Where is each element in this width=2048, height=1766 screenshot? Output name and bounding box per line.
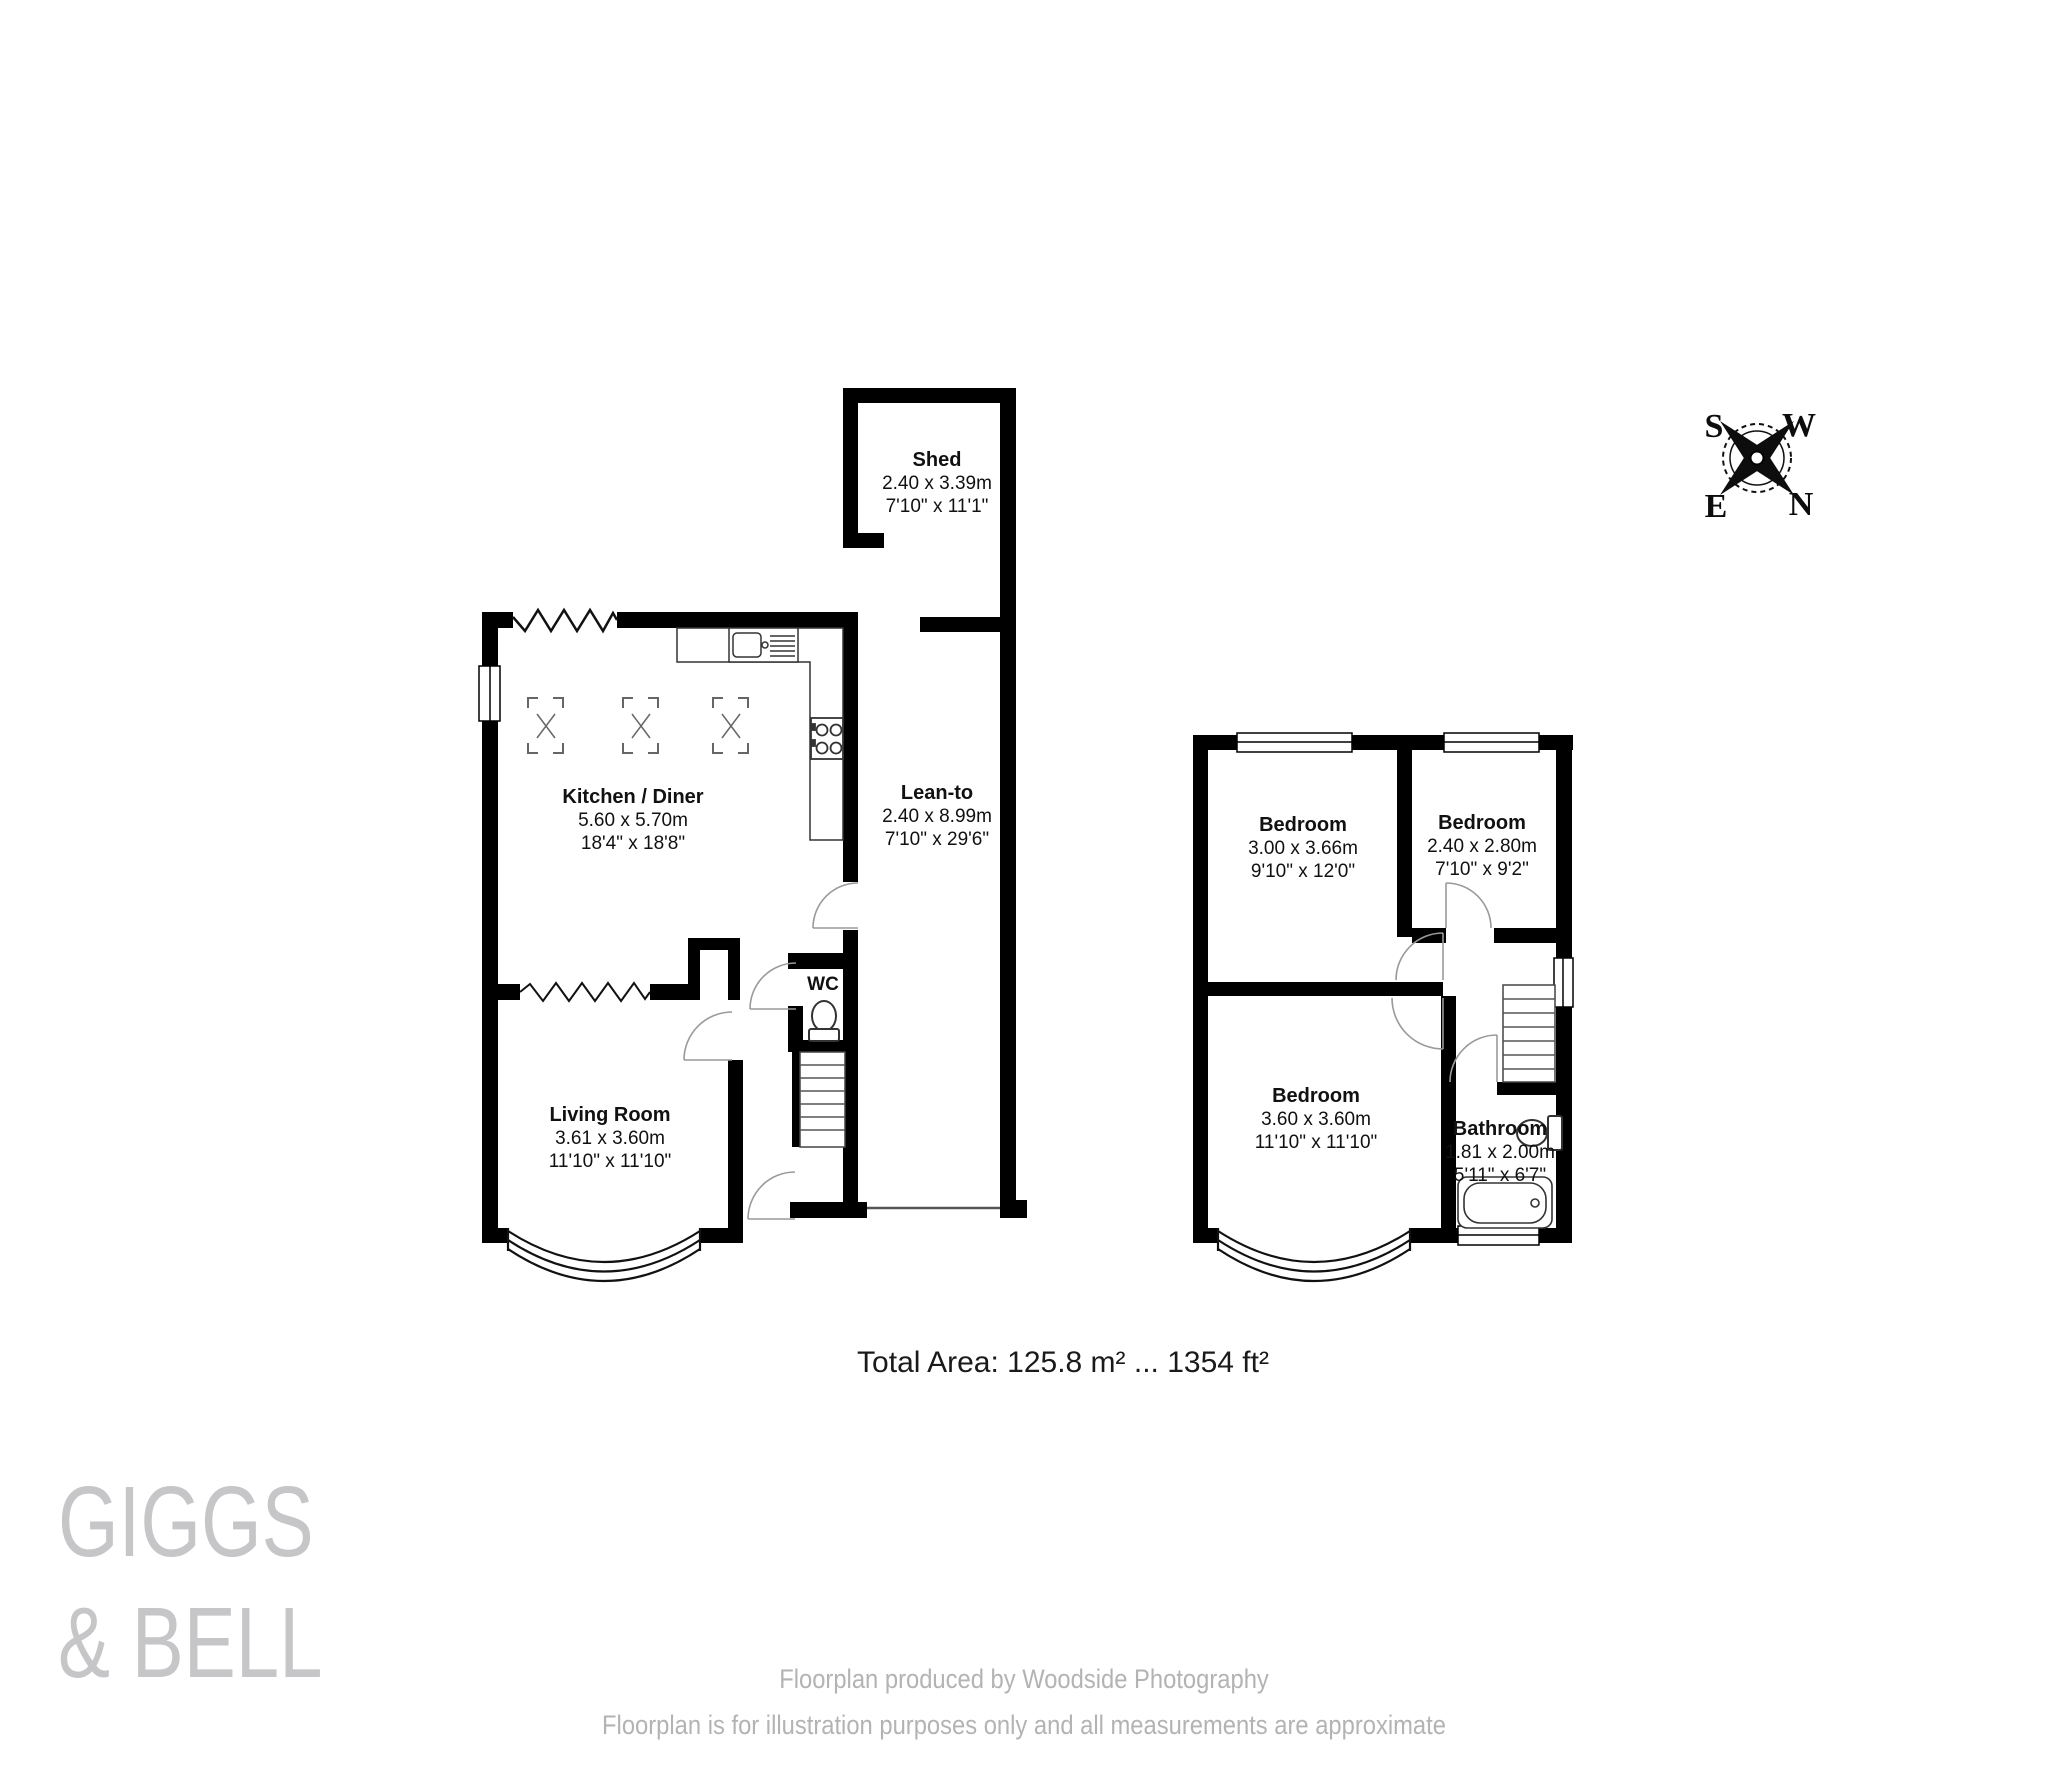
room-size-metric: 2.40 x 2.80m xyxy=(1427,835,1537,858)
compass-south: S xyxy=(1705,408,1724,445)
room-size-metric: 3.00 x 3.66m xyxy=(1248,837,1358,860)
room-size-imperial: 5'11" x 6'7" xyxy=(1445,1164,1555,1187)
stairs-first xyxy=(1503,985,1555,1082)
door-arc xyxy=(750,963,796,1009)
door-arc xyxy=(1392,998,1443,1049)
skylight-icon xyxy=(713,698,748,753)
agency-logo-line-1: GIGGS xyxy=(58,1472,314,1572)
room-label-wc: WC xyxy=(807,974,839,996)
door-arc xyxy=(748,1172,795,1219)
door-arc xyxy=(813,883,858,928)
room-size-metric: 3.61 x 3.60m xyxy=(549,1127,672,1150)
room-size-imperial: 7'10" x 9'2" xyxy=(1427,858,1537,881)
skylight-icon xyxy=(528,698,563,753)
room-size-metric: 5.60 x 5.70m xyxy=(562,809,703,832)
room-size-imperial: 18'4" x 18'8" xyxy=(562,832,703,855)
skylight-icons xyxy=(528,698,748,753)
room-name: Bedroom xyxy=(1248,814,1358,837)
room-name: Bathroom xyxy=(1445,1118,1555,1141)
landing-window xyxy=(1554,958,1573,1007)
room-name: Shed xyxy=(882,449,992,472)
room-label-bathroom: Bathroom 1.81 x 2.00m 5'11" x 6'7" xyxy=(1445,1118,1555,1187)
room-label-lean-to: Lean-to 2.40 x 8.99m 7'10" x 29'6" xyxy=(882,782,992,851)
floorplan-page: S W E N Shed 2.40 x 3.39m 7'10" x 11'1" … xyxy=(0,0,2048,1766)
total-area-text: Total Area: 125.8 m² ... 1354 ft² xyxy=(857,1346,1269,1380)
stairs-ground xyxy=(800,1052,845,1147)
kitchen-window xyxy=(479,666,500,721)
toilet-icon xyxy=(809,1001,839,1041)
door-arc xyxy=(1450,1035,1497,1082)
room-size-imperial: 7'10" x 11'1" xyxy=(882,495,992,518)
room-name: Living Room xyxy=(549,1104,672,1127)
room-size-imperial: 9'10" x 12'0" xyxy=(1248,860,1358,883)
room-label-bedroom-2: Bedroom 2.40 x 2.80m 7'10" x 9'2" xyxy=(1427,812,1537,881)
room-size-metric: 3.60 x 3.60m xyxy=(1255,1108,1378,1131)
room-name: Kitchen / Diner xyxy=(562,786,703,809)
room-label-bedroom-3: Bedroom 3.60 x 3.60m 11'10" x 11'10" xyxy=(1255,1085,1378,1154)
bedroom-window xyxy=(1444,733,1539,752)
bay-window-ground xyxy=(508,1228,700,1281)
zigzag-opening-kitchen xyxy=(513,610,617,631)
room-size-metric: 2.40 x 8.99m xyxy=(882,805,992,828)
footer-disclaimer: Floorplan is for illustration purposes o… xyxy=(602,1712,1446,1739)
skylight-icon xyxy=(623,698,658,753)
footer-credit: Floorplan produced by Woodside Photograp… xyxy=(779,1666,1269,1693)
room-size-metric: 1.81 x 2.00m xyxy=(1445,1141,1555,1164)
agency-logo-line-2: & BELL xyxy=(58,1593,323,1693)
compass-rose: S W E N xyxy=(1705,407,1816,525)
bay-window-first xyxy=(1218,1228,1410,1281)
compass-east: E xyxy=(1705,488,1728,525)
room-size-imperial: 11'10" x 11'10" xyxy=(549,1150,672,1173)
compass-west: W xyxy=(1782,407,1816,444)
bathroom-window xyxy=(1458,1226,1539,1245)
room-name: Bedroom xyxy=(1427,812,1537,835)
room-name: Bedroom xyxy=(1255,1085,1378,1108)
room-size-metric: 2.40 x 3.39m xyxy=(882,472,992,495)
room-name: Lean-to xyxy=(882,782,992,805)
room-size-imperial: 7'10" x 29'6" xyxy=(882,828,992,851)
room-label-kitchen: Kitchen / Diner 5.60 x 5.70m 18'4" x 18'… xyxy=(562,786,703,855)
room-label-shed: Shed 2.40 x 3.39m 7'10" x 11'1" xyxy=(882,449,992,518)
door-arc xyxy=(1446,883,1491,928)
compass-north: N xyxy=(1789,486,1814,523)
zigzag-opening-living-room xyxy=(520,983,650,1001)
kitchen-sink-icon xyxy=(729,628,798,662)
room-label-bedroom-1: Bedroom 3.00 x 3.66m 9'10" x 12'0" xyxy=(1248,814,1358,883)
hob-icon xyxy=(811,718,843,759)
bedroom-window xyxy=(1237,733,1352,752)
room-label-living-room: Living Room 3.61 x 3.60m 11'10" x 11'10" xyxy=(549,1104,672,1173)
room-size-imperial: 11'10" x 11'10" xyxy=(1255,1131,1378,1154)
door-arc xyxy=(684,1012,732,1060)
chimney-breast-recess xyxy=(700,950,728,1000)
